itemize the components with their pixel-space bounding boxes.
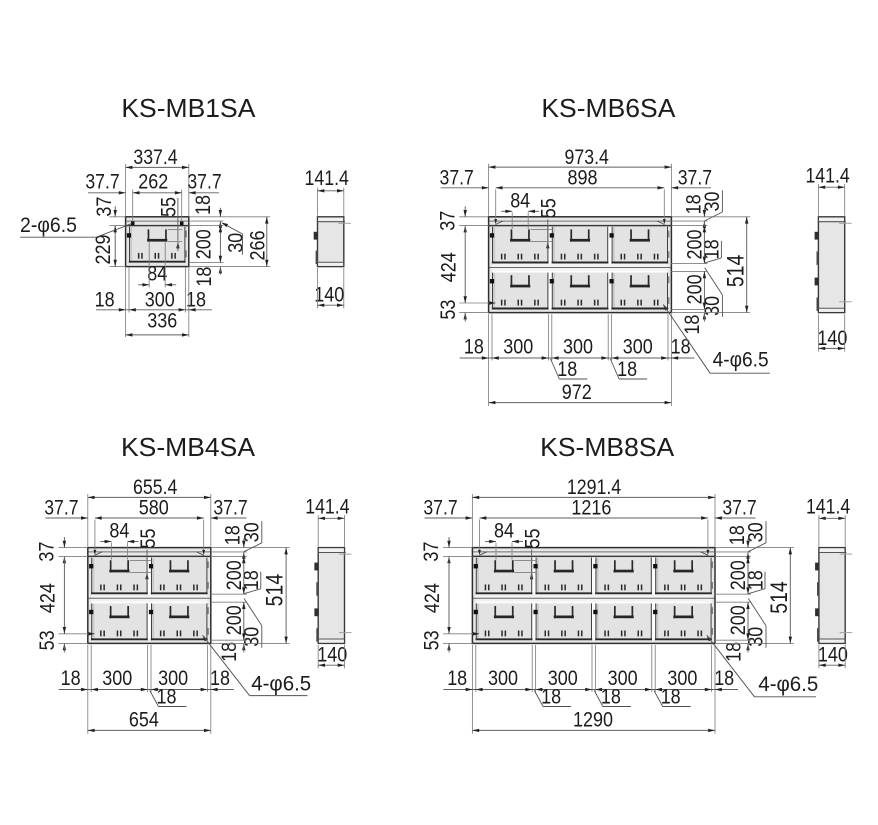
svg-text:KS-MB8SA: KS-MB8SA (540, 432, 675, 462)
svg-text:18: 18 (601, 685, 621, 709)
svg-text:18: 18 (557, 357, 577, 381)
svg-text:30: 30 (239, 522, 263, 542)
svg-text:580: 580 (139, 496, 169, 520)
svg-text:18: 18 (617, 357, 637, 381)
svg-text:300: 300 (102, 666, 132, 690)
svg-text:424: 424 (420, 583, 444, 613)
svg-text:30: 30 (223, 233, 247, 253)
svg-text:300: 300 (488, 666, 518, 690)
svg-text:4-φ6.5: 4-φ6.5 (713, 347, 769, 371)
svg-text:300: 300 (503, 335, 533, 359)
svg-text:37: 37 (92, 197, 116, 217)
svg-text:37.7: 37.7 (722, 496, 756, 520)
svg-text:140: 140 (314, 283, 344, 307)
svg-text:84: 84 (494, 519, 514, 543)
svg-text:37: 37 (435, 211, 459, 231)
svg-text:424: 424 (36, 583, 60, 613)
svg-text:37: 37 (35, 542, 59, 562)
svg-text:18: 18 (671, 335, 691, 359)
svg-text:18: 18 (239, 570, 263, 590)
svg-text:424: 424 (436, 252, 460, 282)
svg-text:140: 140 (317, 643, 347, 667)
svg-text:37: 37 (419, 542, 443, 562)
svg-text:30: 30 (744, 522, 768, 542)
svg-text:37.7: 37.7 (678, 165, 712, 189)
svg-text:2-φ6.5: 2-φ6.5 (20, 213, 77, 237)
svg-text:141.4: 141.4 (305, 495, 349, 519)
svg-text:4-φ6.5: 4-φ6.5 (758, 672, 818, 696)
svg-text:141.4: 141.4 (305, 166, 349, 190)
svg-text:37.7: 37.7 (440, 165, 474, 189)
svg-text:18: 18 (192, 267, 216, 287)
svg-text:514: 514 (722, 255, 749, 288)
svg-text:18: 18 (661, 685, 681, 709)
svg-text:37.7: 37.7 (213, 496, 247, 520)
svg-text:37.7: 37.7 (44, 496, 78, 520)
svg-text:18: 18 (61, 666, 81, 690)
svg-text:141.4: 141.4 (806, 495, 850, 519)
svg-text:972: 972 (562, 380, 592, 404)
svg-text:37.7: 37.7 (423, 496, 457, 520)
svg-text:200: 200 (191, 229, 215, 259)
svg-text:229: 229 (91, 235, 115, 265)
svg-text:18: 18 (464, 335, 484, 359)
svg-text:266: 266 (245, 230, 269, 260)
svg-text:337.4: 337.4 (133, 145, 177, 169)
svg-text:84: 84 (147, 262, 167, 286)
svg-text:18: 18 (541, 685, 561, 709)
svg-text:37.7: 37.7 (85, 170, 119, 194)
svg-text:53: 53 (436, 300, 460, 320)
svg-text:300: 300 (563, 335, 593, 359)
svg-text:336: 336 (147, 309, 177, 333)
svg-text:18: 18 (743, 570, 767, 590)
svg-text:18: 18 (680, 315, 704, 335)
svg-text:18: 18 (210, 666, 230, 690)
svg-text:140: 140 (817, 326, 847, 350)
svg-text:18: 18 (447, 666, 467, 690)
svg-text:37.7: 37.7 (187, 170, 221, 194)
svg-text:898: 898 (568, 165, 598, 189)
svg-text:55: 55 (521, 528, 545, 548)
svg-text:262: 262 (138, 170, 168, 194)
svg-text:654: 654 (129, 708, 159, 732)
svg-text:141.4: 141.4 (805, 164, 849, 188)
svg-text:18: 18 (95, 288, 115, 312)
svg-text:KS-MB4SA: KS-MB4SA (121, 432, 256, 462)
svg-text:55: 55 (136, 528, 160, 548)
svg-text:4-φ6.5: 4-φ6.5 (251, 671, 311, 695)
svg-text:53: 53 (420, 630, 444, 650)
svg-text:84: 84 (109, 519, 129, 543)
svg-text:55: 55 (156, 197, 180, 217)
svg-text:84: 84 (510, 189, 530, 213)
svg-text:KS-MB6SA: KS-MB6SA (541, 93, 676, 123)
svg-text:140: 140 (818, 643, 848, 667)
svg-text:18: 18 (157, 685, 177, 709)
svg-text:1290: 1290 (573, 708, 613, 732)
svg-text:1216: 1216 (571, 496, 611, 520)
svg-text:18: 18 (191, 195, 215, 215)
svg-text:18: 18 (700, 239, 724, 259)
svg-text:514: 514 (262, 574, 289, 607)
svg-text:514: 514 (766, 581, 793, 614)
svg-text:30: 30 (700, 191, 724, 211)
svg-text:KS-MB1SA: KS-MB1SA (121, 93, 256, 123)
svg-text:55: 55 (537, 198, 561, 218)
svg-text:18: 18 (714, 666, 734, 690)
svg-text:53: 53 (35, 630, 59, 650)
svg-text:300: 300 (623, 335, 653, 359)
